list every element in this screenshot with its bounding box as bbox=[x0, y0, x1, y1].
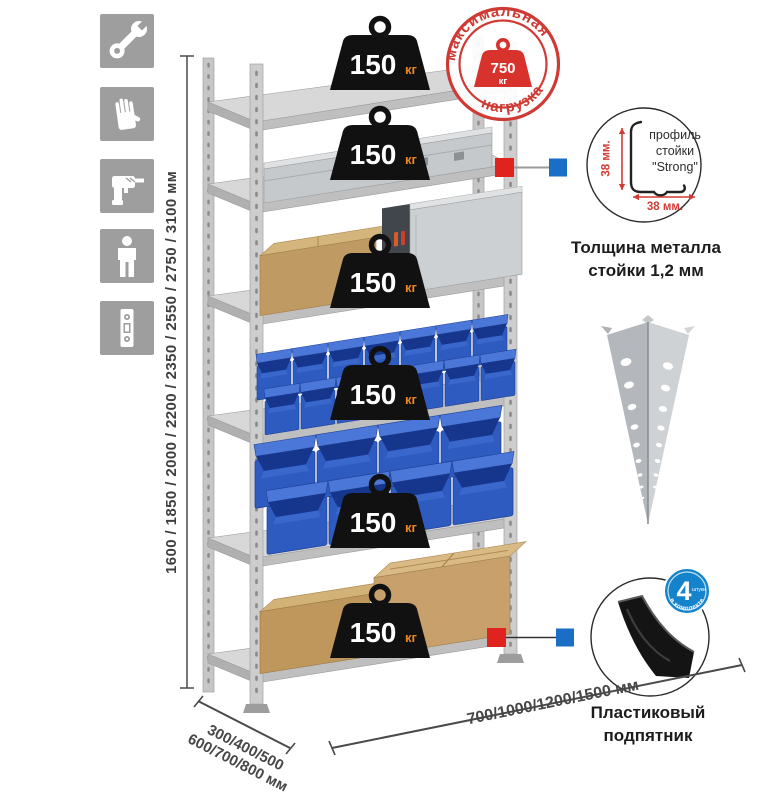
person-icon bbox=[100, 229, 154, 283]
wrench-icon bbox=[100, 14, 154, 68]
metal-thickness-caption-line2: стойки 1,2 мм bbox=[556, 259, 736, 282]
profile-label-line1: профиль bbox=[640, 127, 710, 143]
load-unit: кг bbox=[405, 152, 418, 167]
profile-label-line2: стойки bbox=[640, 143, 710, 159]
profile-dim-vertical-label: 38 мм. bbox=[601, 128, 614, 190]
gloves-icon bbox=[100, 87, 154, 141]
corner-post-image bbox=[601, 315, 695, 524]
max-load-stamp: максимальная нагрузка 750 кг bbox=[431, 0, 572, 129]
stamp-weight-value: 750 bbox=[490, 60, 515, 77]
quantity-badge: 4 штуки в комплекте bbox=[664, 568, 710, 614]
load-badge-1: 150 кг bbox=[330, 19, 430, 91]
load-value: 150 bbox=[350, 507, 397, 538]
load-value: 150 bbox=[350, 139, 397, 170]
plastic-foot-caption: Пластиковый подпятник bbox=[558, 701, 738, 747]
product-infographic: 150 кг 150 кг 150 кг 150 кг 150 кг bbox=[0, 0, 765, 765]
marker-red-top bbox=[495, 158, 514, 177]
load-unit: кг bbox=[405, 630, 418, 645]
metal-thickness-caption: Толщина металла стойки 1,2 мм bbox=[556, 236, 736, 282]
marker-red-bottom bbox=[487, 628, 506, 647]
marker-blue-bottom bbox=[556, 629, 574, 647]
metal-thickness-caption-line1: Толщина металла bbox=[556, 236, 736, 259]
load-badge-2: 150 кг bbox=[330, 109, 430, 181]
stamp-weight-unit: кг bbox=[499, 76, 508, 87]
quantity-small-label: штуки bbox=[692, 587, 706, 593]
height-dimension-label: 1600 / 1850 / 2000 / 2200 / 2350 / 2550 … bbox=[163, 56, 185, 688]
foot-pad-right bbox=[497, 654, 524, 663]
drill-icon bbox=[100, 159, 154, 213]
level-icon bbox=[100, 301, 154, 355]
quantity-value: 4 bbox=[676, 576, 691, 606]
load-unit: кг bbox=[405, 392, 418, 407]
metal-case bbox=[410, 186, 522, 292]
load-value: 150 bbox=[350, 49, 397, 80]
profile-dim-horizontal-label: 38 мм. bbox=[629, 201, 701, 213]
plastic-foot-caption-line2: подпятник bbox=[558, 724, 738, 747]
feature-icons bbox=[100, 14, 154, 355]
load-value: 150 bbox=[350, 379, 397, 410]
load-unit: кг bbox=[405, 280, 418, 295]
foot-pad-left bbox=[243, 704, 270, 713]
load-unit: кг bbox=[405, 62, 418, 77]
load-unit: кг bbox=[405, 520, 418, 535]
load-value: 150 bbox=[350, 267, 397, 298]
load-value: 150 bbox=[350, 617, 397, 648]
profile-label: профиль стойки "Strong" bbox=[640, 127, 710, 175]
profile-label-line3: "Strong" bbox=[640, 159, 710, 175]
marker-blue-top bbox=[549, 159, 567, 177]
